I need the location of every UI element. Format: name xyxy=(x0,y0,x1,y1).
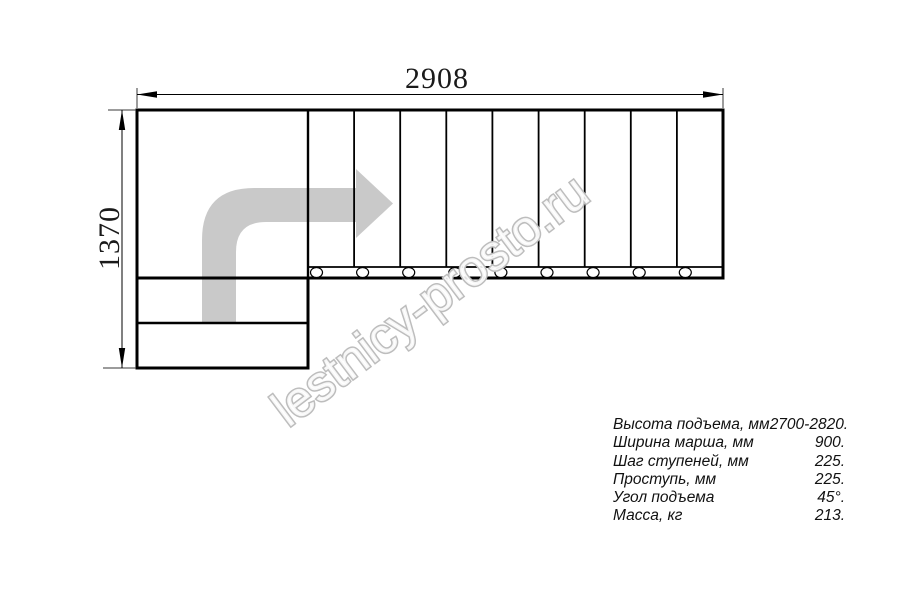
spec-label: Шаг ступеней, мм xyxy=(613,453,749,471)
fastener-circle xyxy=(311,268,323,278)
spec-label: Угол подъема xyxy=(613,489,714,507)
spec-value: 2700-2820. xyxy=(770,416,848,434)
dim-arrowhead-bottom xyxy=(119,348,125,368)
fastener-circle xyxy=(541,268,553,278)
fastener-circle xyxy=(587,268,599,278)
width-dimension: 2908 xyxy=(137,62,723,108)
spec-value: 225. xyxy=(815,471,845,489)
height-dimension: 1370 xyxy=(93,110,136,368)
dim-arrowhead-top xyxy=(119,110,125,130)
height-dimension-label: 1370 xyxy=(93,206,126,270)
spec-row-height: Высота подъема, мм 2700-2820. xyxy=(613,416,845,434)
dim-arrowhead-right xyxy=(703,91,723,97)
fastener-circle xyxy=(357,268,369,278)
spec-label: Ширина марша, мм xyxy=(613,434,754,452)
fastener-circle xyxy=(403,268,415,278)
spec-row-mass: Масса, кг 213. xyxy=(613,507,845,525)
fastener-circle xyxy=(679,268,691,278)
spec-label: Масса, кг xyxy=(613,507,682,525)
spec-row-flight-width: Ширина марша, мм 900. xyxy=(613,434,845,452)
spec-table: Высота подъема, мм 2700-2820. Ширина мар… xyxy=(613,416,845,526)
spec-value: 225. xyxy=(815,453,845,471)
spec-row-tread: Проступь, мм 225. xyxy=(613,471,845,489)
spec-label: Высота подъема, мм xyxy=(613,416,770,434)
spec-value: 900. xyxy=(815,434,845,452)
spec-row-angle: Угол подъема 45°. xyxy=(613,489,845,507)
width-dimension-label: 2908 xyxy=(405,62,469,95)
staircase-plan-screen: 2908 1370 lestnicy-prosto.ru Высота подъ… xyxy=(0,0,900,600)
fastener-circle xyxy=(633,268,645,278)
spec-label: Проступь, мм xyxy=(613,471,716,489)
spec-value: 45°. xyxy=(817,489,845,507)
spec-value: 213. xyxy=(815,507,845,525)
spec-row-step: Шаг ступеней, мм 225. xyxy=(613,453,845,471)
direction-arrow xyxy=(202,169,393,323)
dim-arrowhead-left xyxy=(137,91,157,97)
